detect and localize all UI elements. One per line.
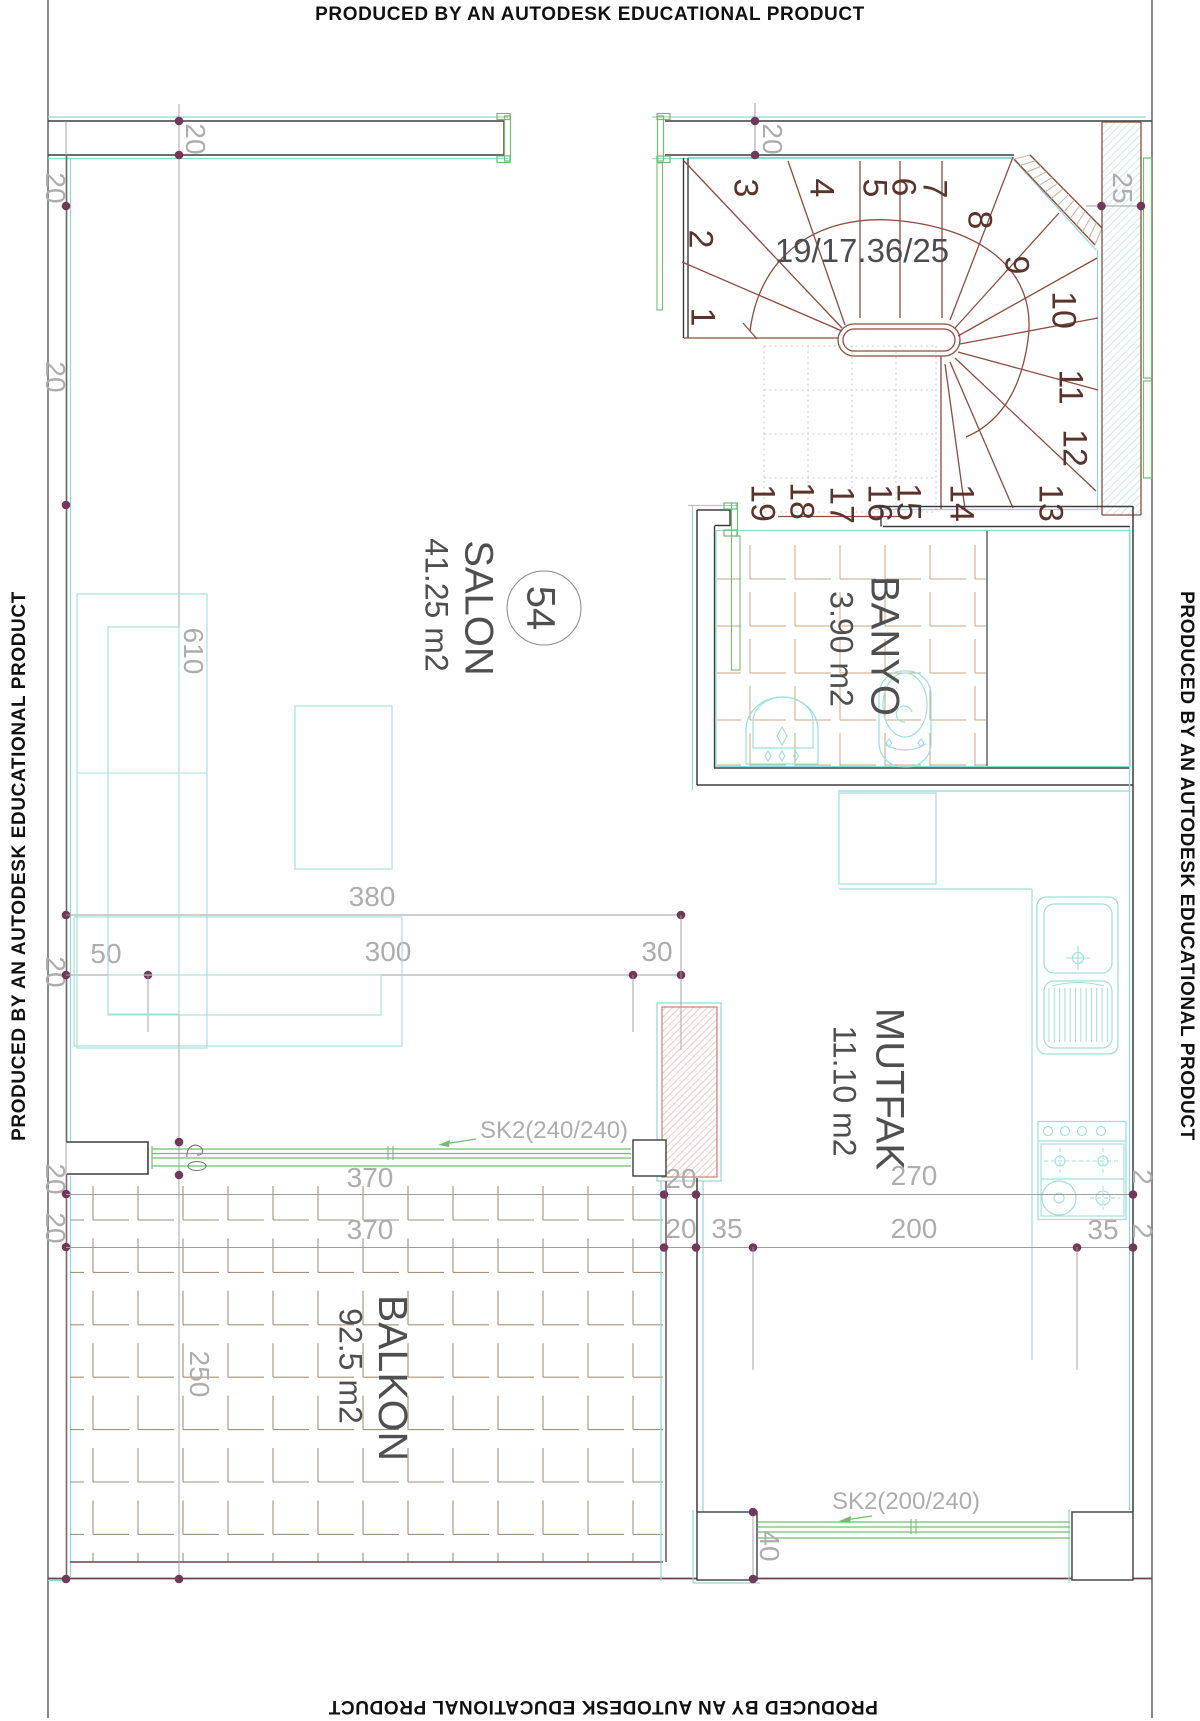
svg-text:380: 380 [349, 881, 396, 912]
svg-text:35: 35 [1087, 1214, 1118, 1245]
svg-text:SK2(240/240): SK2(240/240) [480, 1117, 628, 1144]
svg-text:20: 20 [180, 123, 211, 154]
svg-text:20: 20 [665, 1163, 696, 1194]
svg-text:PRODUCED BY AN AUTODESK EDUCAT: PRODUCED BY AN AUTODESK EDUCATIONAL PROD… [328, 1696, 878, 1717]
svg-text:14: 14 [943, 484, 981, 522]
svg-text:BANYO: BANYO [862, 576, 906, 716]
svg-text:370: 370 [347, 1214, 394, 1245]
svg-text:13: 13 [1032, 484, 1070, 522]
svg-text:17: 17 [823, 486, 861, 524]
svg-text:30: 30 [641, 936, 672, 967]
svg-text:MUTFAK: MUTFAK [867, 1008, 911, 1171]
svg-text:250: 250 [184, 1351, 215, 1398]
svg-text:20: 20 [40, 1212, 71, 1243]
svg-text:PRODUCED BY AN AUTODESK EDUCAT: PRODUCED BY AN AUTODESK EDUCATIONAL PROD… [1176, 591, 1197, 1141]
svg-text:50: 50 [90, 938, 121, 969]
svg-text:10: 10 [1045, 291, 1083, 329]
svg-text:3.90 m2: 3.90 m2 [823, 591, 859, 707]
svg-text:25: 25 [1107, 172, 1138, 203]
svg-text:300: 300 [365, 936, 412, 967]
svg-text:19/17.36/25: 19/17.36/25 [775, 232, 949, 269]
svg-text:92.5 m2: 92.5 m2 [332, 1308, 368, 1424]
svg-text:2: 2 [1127, 1223, 1158, 1239]
svg-text:610: 610 [178, 628, 209, 675]
svg-text:4: 4 [803, 179, 841, 198]
svg-text:1: 1 [684, 308, 722, 327]
svg-text:41.25 m2: 41.25 m2 [418, 538, 454, 671]
svg-text:20: 20 [40, 172, 71, 203]
svg-text:7: 7 [916, 180, 954, 199]
svg-text:18: 18 [783, 482, 821, 520]
svg-text:54: 54 [518, 586, 562, 631]
svg-text:9: 9 [998, 256, 1036, 275]
svg-text:3: 3 [727, 179, 765, 198]
svg-text:2: 2 [1127, 1169, 1158, 1185]
svg-text:BALKON: BALKON [370, 1295, 416, 1461]
svg-text:11.10 m2: 11.10 m2 [826, 1025, 862, 1156]
svg-text:20: 20 [665, 1213, 696, 1244]
svg-text:12: 12 [1056, 429, 1094, 467]
svg-text:19: 19 [744, 484, 782, 522]
svg-text:200: 200 [891, 1213, 938, 1244]
svg-text:370: 370 [347, 1162, 394, 1193]
svg-text:8: 8 [961, 211, 999, 230]
svg-text:SK2(200/240): SK2(200/240) [832, 1488, 980, 1515]
svg-text:20: 20 [40, 361, 71, 392]
svg-text:11: 11 [1052, 369, 1090, 404]
svg-text:20: 20 [757, 123, 788, 154]
svg-text:16: 16 [861, 484, 899, 522]
svg-text:35: 35 [711, 1213, 742, 1244]
svg-text:PRODUCED BY AN AUTODESK EDUCAT: PRODUCED BY AN AUTODESK EDUCATIONAL PROD… [9, 591, 30, 1141]
svg-text:SALON: SALON [456, 540, 500, 676]
svg-text:270: 270 [891, 1160, 938, 1191]
svg-text:PRODUCED BY AN AUTODESK EDUCAT: PRODUCED BY AN AUTODESK EDUCATIONAL PROD… [315, 4, 865, 25]
svg-text:40: 40 [754, 1530, 785, 1561]
svg-text:2: 2 [682, 230, 720, 249]
